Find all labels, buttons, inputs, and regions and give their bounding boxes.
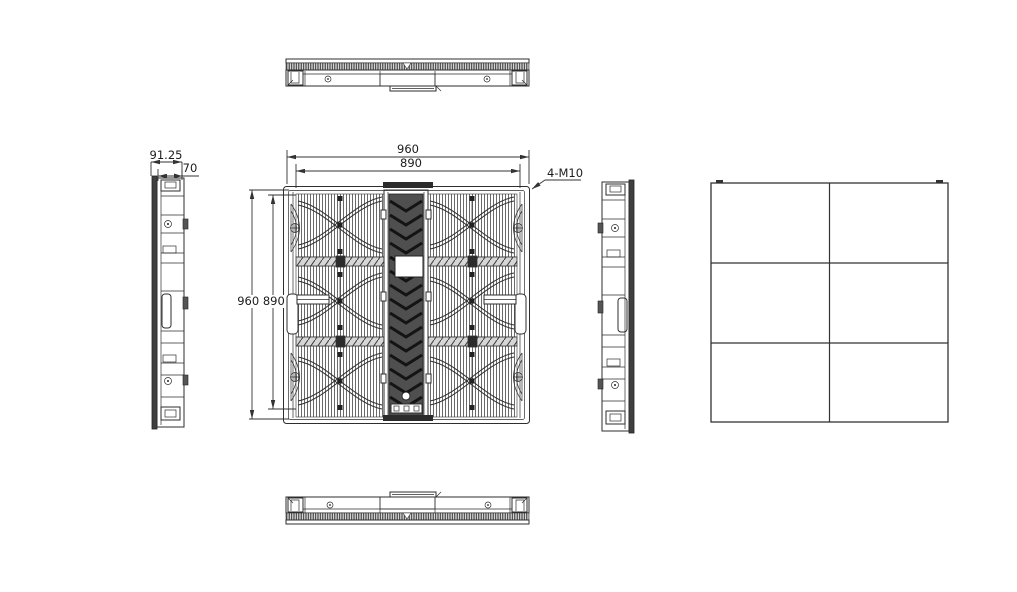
dim-label-960-890-left: 960 890 <box>237 294 285 308</box>
dim-side-depth-overall: 91.25 <box>150 148 183 176</box>
dim-label-91-25: 91.25 <box>150 148 183 162</box>
engineering-drawing: 960 890 4-M10 960 890 91.25 <box>0 0 1017 592</box>
left-side-clip-bottom <box>183 375 188 385</box>
top-body <box>286 70 529 86</box>
spine-bottom-connector <box>383 415 433 421</box>
left-side-clip-top <box>183 219 188 229</box>
left-side-view <box>152 176 188 429</box>
callout-mounting-holes: 4-M10 <box>532 166 583 189</box>
callout-label-4-m10: 4-M10 <box>547 166 583 180</box>
bottom-face-edge <box>286 520 529 524</box>
top-profile-view <box>286 59 529 91</box>
right-side-clip-top <box>598 223 603 233</box>
bottom-body <box>286 497 529 513</box>
right-side-clip-bottom <box>598 379 603 389</box>
right-side-clip-mid <box>598 301 603 313</box>
spine-bottom-bracket <box>391 404 422 413</box>
left-side-clip-mid <box>183 297 188 309</box>
right-side-view <box>598 180 634 433</box>
spine-core <box>389 194 423 416</box>
bottom-center-tab <box>390 492 441 497</box>
bottom-profile-view <box>286 492 529 524</box>
spine-label-plate <box>395 256 423 277</box>
top-face-edge <box>286 59 529 63</box>
spine-bottom-hole <box>402 392 410 400</box>
dim-label-890-top: 890 <box>400 156 422 170</box>
rear-grid-view <box>711 180 948 422</box>
dim-label-70: 70 <box>183 161 198 175</box>
drawing-canvas: 960 890 4-M10 960 890 91.25 <box>0 0 1017 592</box>
left-side-face-strip <box>152 176 157 429</box>
dim-label-960-top: 960 <box>397 142 419 156</box>
right-side-face-strip <box>629 180 634 433</box>
front-view <box>284 182 530 424</box>
top-center-tab <box>390 86 441 91</box>
spine-top-connector <box>383 182 433 188</box>
